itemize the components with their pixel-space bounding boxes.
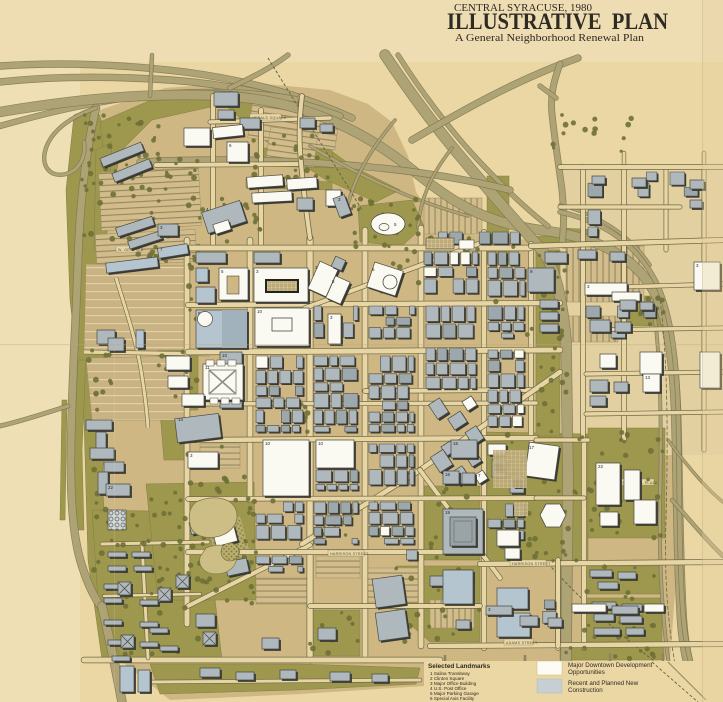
svg-text:Major Downtown Development: Major Downtown Development [568, 662, 653, 669]
svg-text:A General Neighborhood Renewal: A General Neighborhood Renewal Plan [455, 32, 645, 44]
svg-text:13: 13 [645, 375, 651, 380]
svg-text:Construction: Construction [568, 687, 603, 694]
svg-text:10: 10 [257, 309, 263, 314]
svg-text:10: 10 [222, 353, 228, 358]
svg-text:ADAMS STREET: ADAMS STREET [506, 641, 538, 645]
svg-text:15: 15 [453, 441, 459, 446]
svg-text:Opportunities: Opportunities [568, 669, 605, 676]
svg-text:6 Special Axis Facility: 6 Special Axis Facility [430, 696, 475, 701]
svg-text:HARRISON STREET: HARRISON STREET [330, 552, 369, 556]
svg-text:19: 19 [445, 510, 451, 515]
svg-text:22: 22 [598, 464, 604, 469]
svg-text:16: 16 [445, 472, 451, 477]
svg-text:22: 22 [108, 485, 114, 490]
svg-text:HARRISON STREET: HARRISON STREET [512, 562, 551, 566]
svg-text:17: 17 [529, 445, 535, 450]
svg-text:Recent and Planned New: Recent and Planned New [568, 680, 639, 687]
svg-text:ILLUSTRATIVE PLAN: ILLUSTRATIVE PLAN [447, 9, 668, 34]
svg-text:14: 14 [178, 417, 184, 422]
svg-text:Selected Landmarks: Selected Landmarks [428, 663, 491, 670]
svg-text:10: 10 [265, 441, 271, 446]
svg-text:10: 10 [318, 441, 324, 446]
